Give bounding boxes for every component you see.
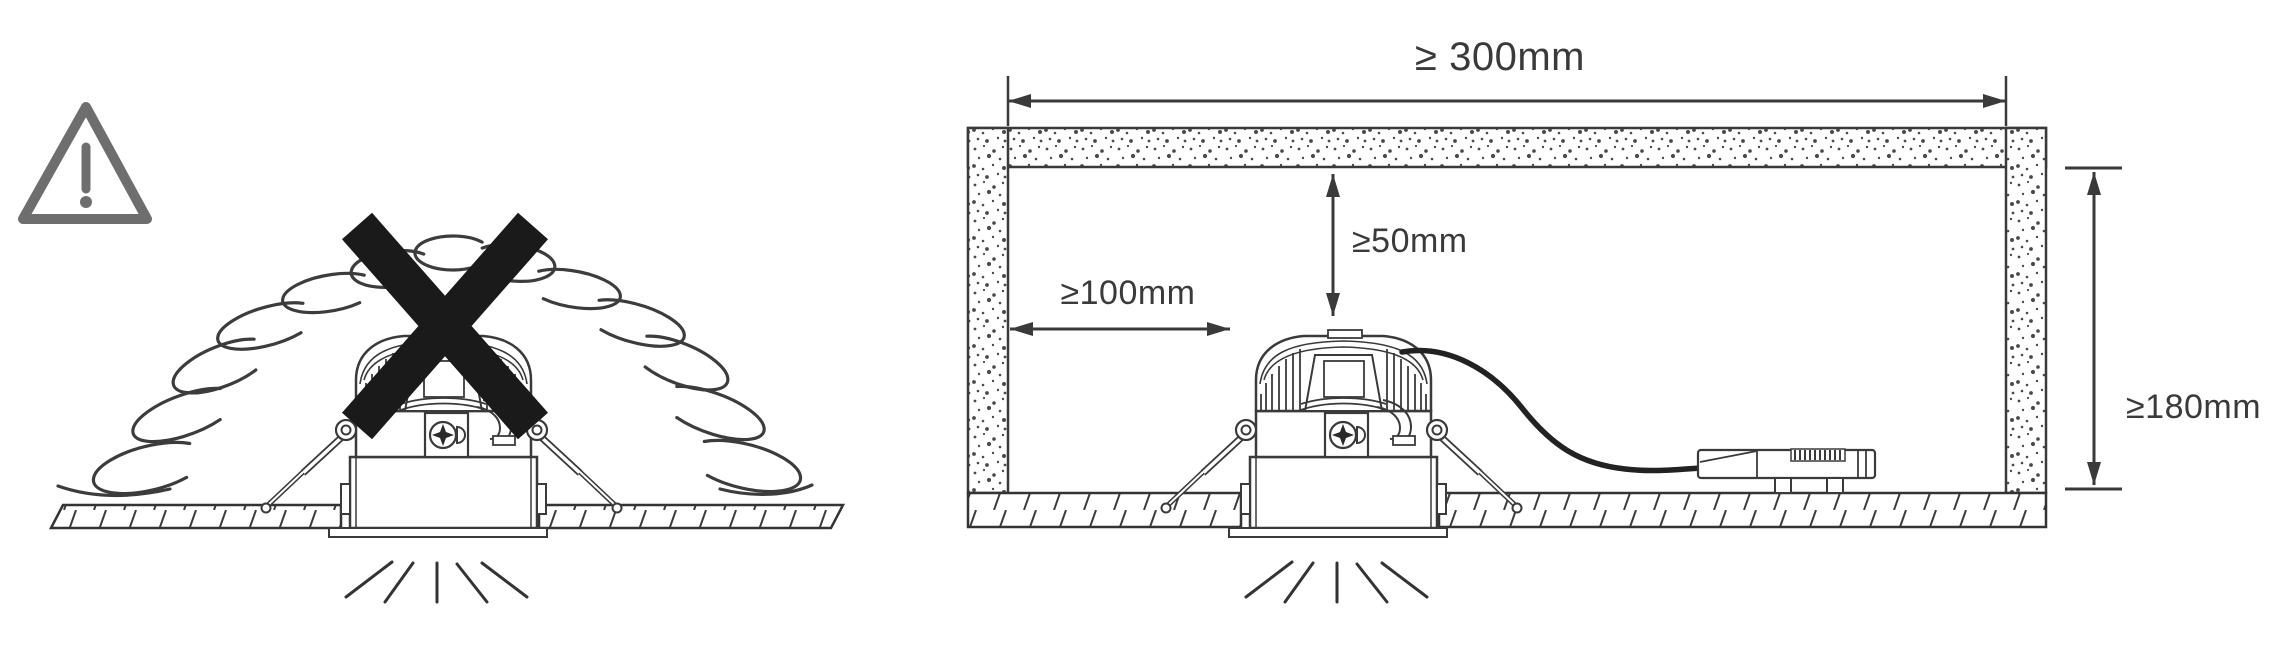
driver-cable bbox=[1402, 351, 1700, 471]
insulation-loop bbox=[645, 336, 728, 390]
no-insulation-figure bbox=[23, 107, 843, 602]
exclamation-dot bbox=[80, 196, 92, 208]
warning-triangle-icon bbox=[23, 107, 147, 219]
dim-top-clearance: ≥50mm bbox=[1333, 174, 1468, 316]
light-rays bbox=[346, 562, 527, 602]
light-rays bbox=[1246, 562, 1427, 602]
top-wall bbox=[968, 128, 2046, 167]
dim-width-label: ≥ 300mm bbox=[1415, 35, 1585, 79]
dim-height: ≥180mm bbox=[2065, 168, 2261, 489]
insulation-loop bbox=[173, 339, 256, 393]
diagram-canvas: ≥ 300mm ≥50mm ≥100mm ≥180mm bbox=[0, 0, 2284, 648]
driver-foot bbox=[1775, 478, 1791, 493]
driver-vent-grille bbox=[1791, 449, 1845, 461]
insulation-loop bbox=[283, 273, 365, 312]
led-driver bbox=[1698, 449, 1875, 493]
clearance-figure: ≥ 300mm ≥50mm ≥100mm ≥180mm bbox=[968, 35, 2261, 602]
driver-foot bbox=[1827, 478, 1843, 493]
left-wall bbox=[968, 128, 1008, 493]
insulation-loop bbox=[415, 236, 482, 270]
dim-side-clearance-label: ≥100mm bbox=[1060, 274, 1195, 312]
dim-height-label: ≥180mm bbox=[2126, 388, 2261, 426]
right-wall bbox=[2006, 128, 2046, 493]
insulation-loop bbox=[133, 388, 220, 441]
insulation-loop bbox=[704, 440, 800, 491]
insulation-loop bbox=[677, 386, 764, 439]
installation-diagram: ≥ 300mm ≥50mm ≥100mm ≥180mm bbox=[0, 0, 2284, 648]
dim-side-clearance: ≥100mm bbox=[1010, 274, 1230, 329]
dim-width: ≥ 300mm bbox=[1008, 35, 2006, 126]
dim-top-clearance-label: ≥50mm bbox=[1352, 222, 1468, 260]
insulation-loop bbox=[93, 442, 189, 493]
